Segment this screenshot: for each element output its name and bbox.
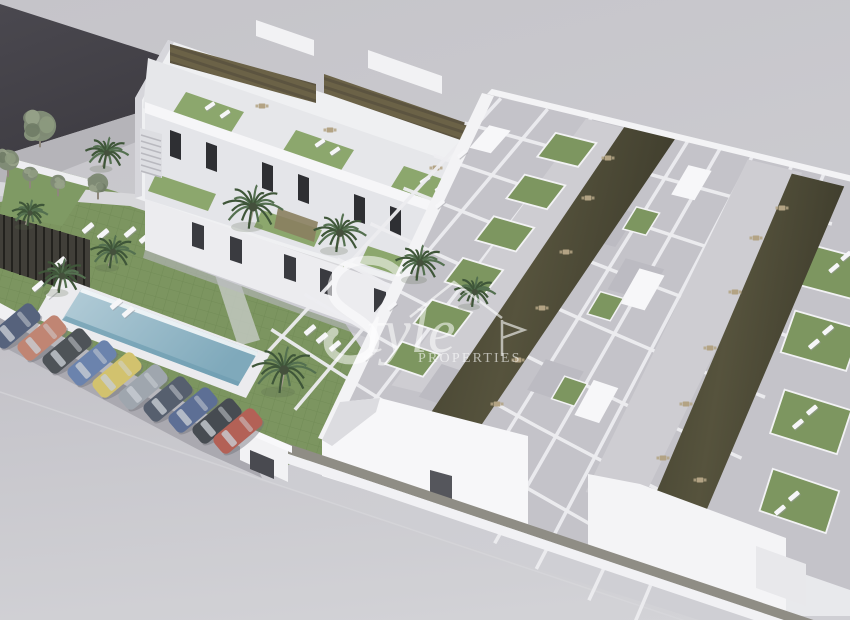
svg-text:PROPERTIES: PROPERTIES: [418, 351, 522, 366]
